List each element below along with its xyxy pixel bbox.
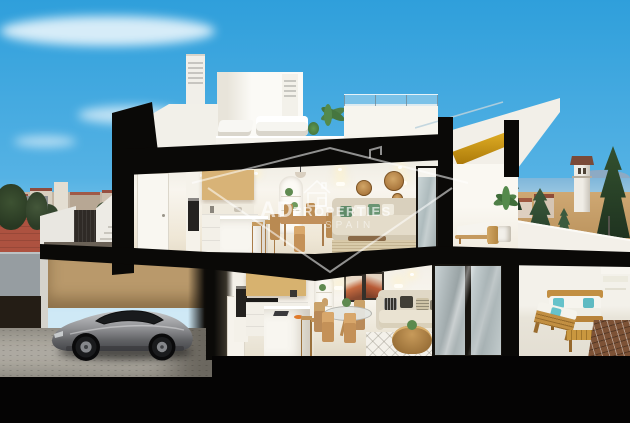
watermark-brand-primary: AD	[260, 199, 294, 221]
cutaway-render-scene: AD PROPERTIES SPAIN	[0, 0, 630, 423]
watermark-tagline: SPAIN	[325, 221, 374, 231]
house-outline-icon	[304, 181, 330, 206]
watermark-brand-secondary: PROPERTIES	[293, 205, 392, 218]
